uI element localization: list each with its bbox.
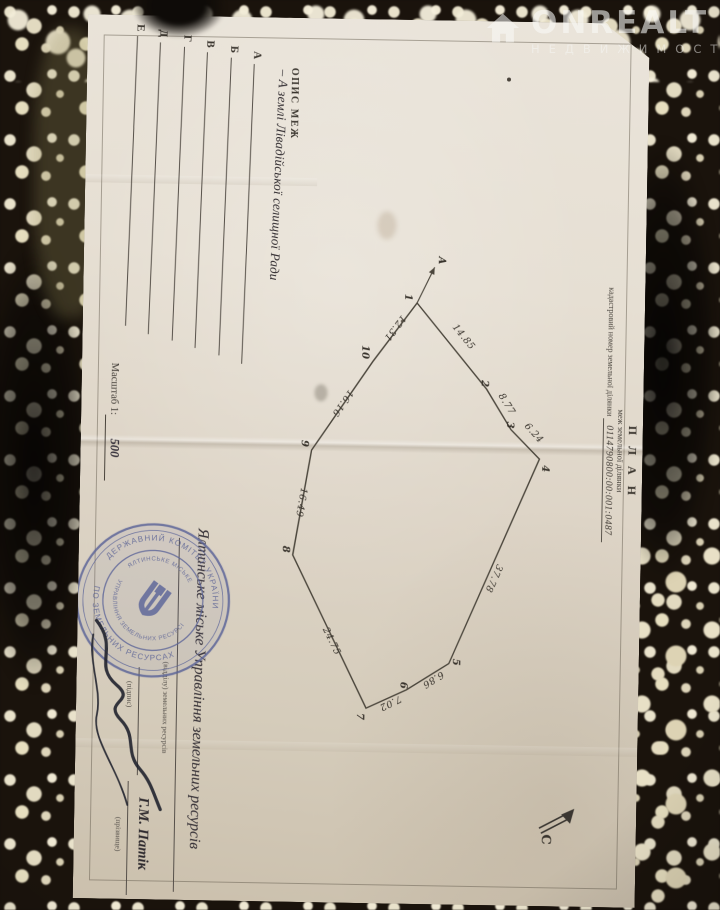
official-stamp: ДЕРЖАВНИЙ КОМІТЕТ УКРАЇНИ ПО ЗЕМЕЛЬНИХ Р… xyxy=(73,491,262,709)
onrealt-watermark: ONREALT НЕДВИЖИМОСТЬ xyxy=(484,8,720,56)
north-arrow: С xyxy=(538,808,575,845)
watermark-brand: ONREALT xyxy=(531,8,720,39)
cadastral-plan-paper: П Л А Н меж земельної ділянки кадастрови… xyxy=(73,14,650,908)
ink-overlay: ДЕРЖАВНИЙ КОМІТЕТ УКРАЇНИ ПО ЗЕМЕЛЬНИХ Р… xyxy=(73,14,650,908)
stamp-haze xyxy=(73,491,262,709)
watermark-subtitle: НЕДВИЖИМОСТЬ xyxy=(531,42,720,56)
lace-highlight-bottom-right xyxy=(628,540,720,910)
north-label: С xyxy=(538,834,553,845)
house-icon xyxy=(484,10,522,48)
